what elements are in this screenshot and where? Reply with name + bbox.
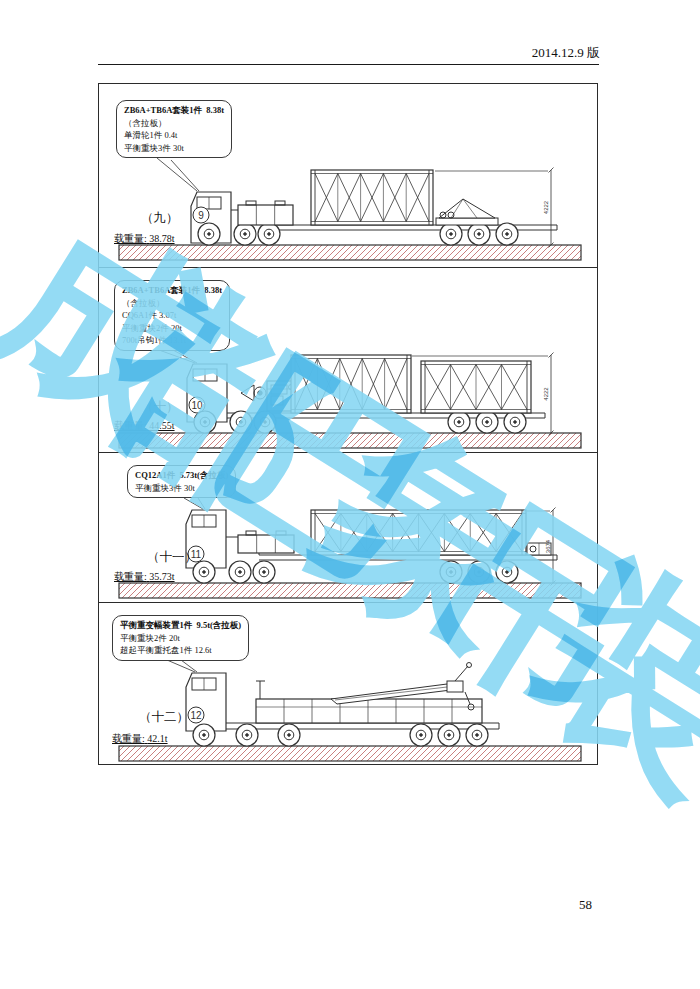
header-rule <box>98 64 599 65</box>
lattice-truss-load <box>311 170 433 225</box>
panel-ordinal: （九） <box>141 210 179 227</box>
callout-line: 平衡重块3件 30t <box>135 482 228 495</box>
wheel <box>466 724 488 746</box>
height-dimension-value: 4222 <box>543 200 549 214</box>
wheel <box>496 561 518 583</box>
callout-line: ZB6A+TB6A套装1件 8.38t <box>122 284 222 297</box>
callout-line: 单滑轮1件 0.4t <box>124 129 224 142</box>
wheel <box>504 411 526 433</box>
load-weight-label: 载重量: <box>114 233 147 244</box>
panel-ordinal: （十） <box>141 399 179 416</box>
diagram-frame: 94222 ZB6A+TB6A套装1件 8.38t （含拉板） 单滑轮1件 0.… <box>98 83 598 765</box>
truck-number: 10 <box>191 400 203 411</box>
cargo-callout: ZB6A+TB6A套装1件 8.38t （含拉板） CQ6A1件 3.07t 平… <box>114 280 230 351</box>
callout-line: 平衡重变幅装置1件 9.5t(含拉板) <box>120 619 241 632</box>
lattice-truss-load <box>311 510 526 555</box>
load-weight-label: 载重量: <box>114 571 147 582</box>
wheel <box>198 223 220 245</box>
callout-line: CQ6A1件 3.07t <box>122 309 222 322</box>
page-number: 58 <box>579 897 592 913</box>
lattice-truss-load <box>291 355 411 413</box>
wheel <box>234 223 256 245</box>
wheel <box>258 223 280 245</box>
lattice-truss-load <box>421 361 531 413</box>
wheel <box>193 724 215 746</box>
luffing-device-load <box>256 663 482 724</box>
wheel <box>476 411 498 433</box>
wheel <box>278 724 300 746</box>
wheel <box>468 561 490 583</box>
callout-line: 超起平衡重托盘1件 12.6t <box>120 644 241 657</box>
load-weight: 载重量: 35.73t <box>114 570 175 584</box>
height-dimension: 4222 <box>543 353 554 436</box>
panel-ordinal: （十一） <box>147 549 197 566</box>
cargo-callout: ZB6A+TB6A套装1件 8.38t （含拉板） 单滑轮1件 0.4t 平衡重… <box>116 100 232 158</box>
truck-number: 12 <box>190 710 202 721</box>
wheel <box>194 411 216 433</box>
ground-hatch <box>119 433 581 448</box>
callout-line: 700t吊钩1件 13.1t <box>122 334 222 347</box>
wheel <box>230 411 252 433</box>
wheel <box>440 561 462 583</box>
load-weight: 载重量: 44.55t <box>114 419 175 433</box>
load-weight: 载重量: 38.78t <box>114 232 175 246</box>
transport-panel-10: 104222 ZB6A+TB6A套装1件 8.38t （含拉板） CQ6A1件 … <box>99 268 597 453</box>
wheel <box>229 561 251 583</box>
callout-line: （含拉板） <box>124 117 224 130</box>
load-weight-value: 44.55t <box>149 420 174 431</box>
wheel <box>438 724 460 746</box>
load-weight: 载重量: 42.1t <box>112 732 168 746</box>
wheel <box>496 223 518 245</box>
callout-line: CQ12A1件 5.73t(含拉板) <box>135 469 228 482</box>
height-dimension: 4222 <box>543 168 554 248</box>
load-weight-label: 载重量: <box>114 420 147 431</box>
load-weight-label: 载重量: <box>112 733 145 744</box>
counterweight-stack <box>238 201 293 225</box>
height-dimension-value: 4222 <box>543 387 549 401</box>
counterweight-stack <box>238 531 294 553</box>
cargo-callout: 平衡重变幅装置1件 9.5t(含拉板) 平衡重块2件 20t 超起平衡重托盘1件… <box>112 615 249 661</box>
cargo-callout: CQ12A1件 5.73t(含拉板) 平衡重块3件 30t <box>127 465 236 498</box>
wheel <box>253 561 275 583</box>
wheel <box>410 724 432 746</box>
panel-ordinal: （十二） <box>139 709 189 726</box>
ground-hatch <box>119 583 581 598</box>
load-weight-value: 38.78t <box>149 233 174 244</box>
wheel <box>236 724 258 746</box>
document-page: 2014.12.9 版 94222 ZB6A+TB6A套装1件 8.38t （含… <box>0 0 700 989</box>
callout-line: 平衡重块2件 20t <box>120 632 241 645</box>
height-dimension-value: 3674 <box>545 539 551 553</box>
callout-line: （含拉板） <box>122 297 222 310</box>
truck-number: 9 <box>198 210 204 221</box>
callout-line: ZB6A+TB6A套装1件 8.38t <box>124 104 224 117</box>
transport-panel-9: 94222 ZB6A+TB6A套装1件 8.38t （含拉板） 单滑轮1件 0.… <box>99 84 597 268</box>
jib-hook-assembly <box>436 199 498 225</box>
load-weight-value: 42.1t <box>147 733 167 744</box>
truck-cab: 12 <box>186 673 226 731</box>
callout-line: 平衡重块3件 30t <box>124 142 224 155</box>
transport-panel-12: 12 平衡重变幅装置1件 9.5t(含拉板) 平衡重块2件 20t 超起平衡重托… <box>99 603 597 766</box>
wheel <box>440 223 462 245</box>
height-dimension: 3674 <box>545 508 556 586</box>
wheel <box>254 411 276 433</box>
transport-panel-11: 113674 CQ12A1件 5.73t(含拉板) 平衡重块3件 30t （十一… <box>99 453 597 603</box>
ground-hatch <box>119 245 581 260</box>
ground-hatch <box>119 746 581 761</box>
load-weight-value: 35.73t <box>149 571 174 582</box>
wheel <box>448 411 470 433</box>
wheel <box>468 223 490 245</box>
callout-line: 平衡重块2件 20t <box>122 322 222 335</box>
version-label: 2014.12.9 版 <box>532 44 600 62</box>
